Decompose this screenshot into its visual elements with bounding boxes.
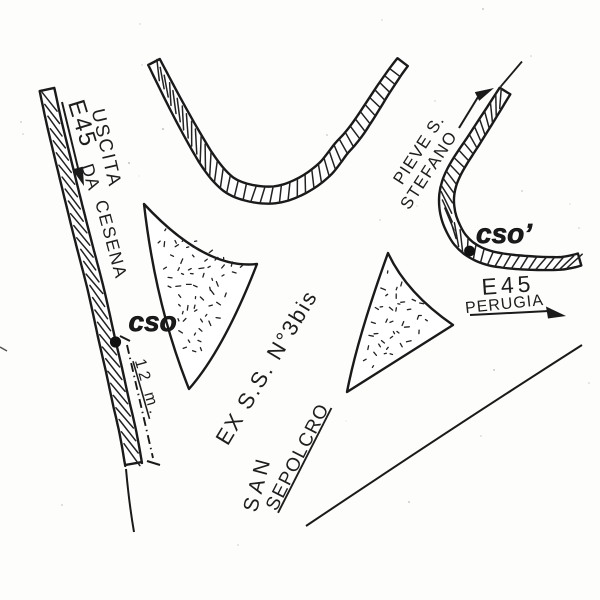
svg-text:cso: cso (129, 306, 177, 337)
svg-text:cso’: cso’ (476, 218, 533, 249)
